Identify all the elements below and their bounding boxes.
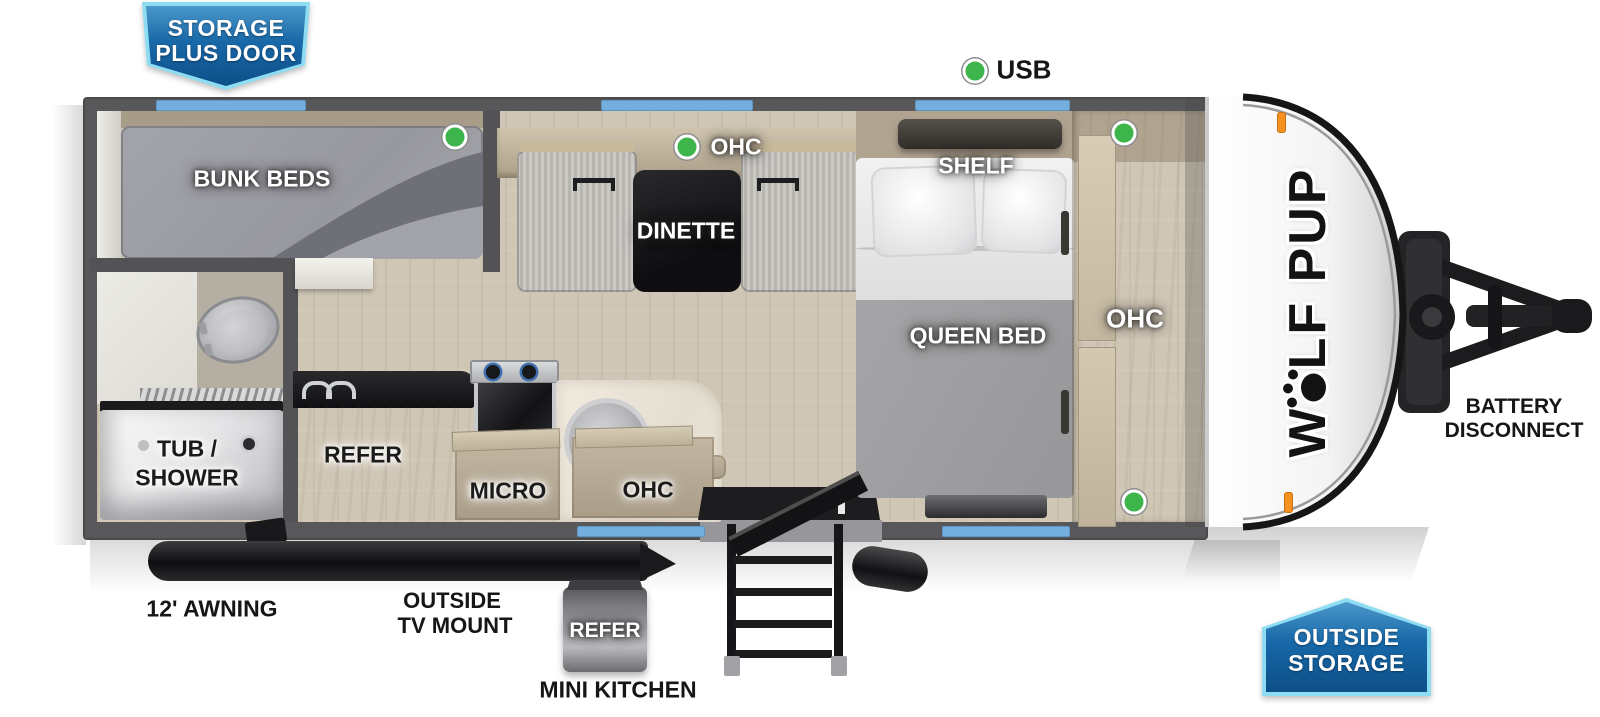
outside-storage-badge: OUTSIDE STORAGE <box>1262 598 1431 696</box>
outside-storage-line2: STORAGE <box>1262 650 1431 677</box>
window-top-bedroom <box>915 100 1070 111</box>
refer-label: REFER <box>324 442 402 469</box>
dinette-bench-left <box>517 150 637 292</box>
paw-print-icon <box>1301 373 1326 401</box>
micro-cabinet-flap <box>452 428 561 452</box>
wardrobe-handle-icon <box>1061 211 1069 255</box>
usb-label: USB <box>997 55 1052 86</box>
outside-storage-line1: OUTSIDE <box>1262 624 1431 651</box>
towel-hook-icon <box>326 381 356 399</box>
entry-steps-foot <box>724 656 740 676</box>
light-indicator-bedroom-rear <box>1122 490 1147 515</box>
dinette-bench-right <box>741 150 861 292</box>
wolf-pup-logo: WLF PUP <box>1205 90 1411 534</box>
bunk-beds-label: BUNK BEDS <box>194 166 331 193</box>
pillow-icon <box>981 168 1068 255</box>
entry-steps-rung <box>734 556 832 564</box>
window-bottom-bedroom <box>942 526 1070 537</box>
stove-cooktop-icon <box>470 360 559 384</box>
logo-rest: LF PUP <box>1279 167 1337 370</box>
outside-tv-mount-label-line1: OUTSIDE <box>403 588 501 614</box>
window-top-bunk <box>156 100 306 111</box>
kitchen-shelf-ledge <box>295 258 373 289</box>
floorplan-canvas: BUNK BEDS TUB / SHOWER REFER MICRO OHC <box>0 0 1600 717</box>
kitchen-ohc-end <box>712 455 726 479</box>
bunk-beds <box>121 126 483 259</box>
dinette-ohc-label: OHC <box>710 134 761 161</box>
micro-label: MICRO <box>470 478 547 505</box>
light-indicator-bunk <box>443 125 468 150</box>
entry-steps-rail <box>834 524 843 670</box>
battery-disconnect-label-line1: BATTERY <box>1466 395 1563 419</box>
storage-plus-door-line1: STORAGE <box>142 15 310 42</box>
window-bottom-kitchen <box>577 526 705 537</box>
queen-bed-label: QUEEN BED <box>910 323 1047 350</box>
table-bracket-icon <box>573 178 615 191</box>
dinette-label: DINETTE <box>637 218 735 245</box>
awning-label: 12' AWNING <box>146 596 277 623</box>
storage-plus-door-badge: STORAGE PLUS DOOR <box>142 2 310 90</box>
bunk-room-left-trim <box>97 111 121 272</box>
usb-indicator <box>963 59 988 84</box>
light-indicator-dinette-ohc <box>675 135 700 160</box>
tub-shower-label-line2: SHOWER <box>135 465 239 492</box>
body-shadow-left <box>52 105 86 545</box>
kitchen-ohc-label: OHC <box>622 477 673 504</box>
tv-mount-bracket <box>925 495 1047 518</box>
bunk-curve-icon <box>121 126 483 259</box>
light-indicator-bedroom-front <box>1112 121 1137 146</box>
window-top-dinette <box>601 100 753 111</box>
outside-tv-mount-label-line2: TV MOUNT <box>398 613 513 639</box>
wardrobe-door-lower <box>1078 347 1116 527</box>
entry-steps-foot <box>831 656 847 676</box>
mini-kitchen-label: MINI KITCHEN <box>539 677 696 704</box>
entry-steps-rung <box>734 620 832 628</box>
logo-letter: W <box>1279 405 1337 457</box>
tub-shower-label-line1: TUB / <box>157 436 217 463</box>
entry-steps-rung <box>734 588 832 596</box>
battery-disconnect-label-line2: DISCONNECT <box>1445 419 1584 443</box>
awning-tube <box>148 541 648 581</box>
shelf-icon <box>898 119 1062 149</box>
table-bracket-icon <box>757 178 799 191</box>
bedroom-ohc-label: OHC <box>1106 304 1164 335</box>
storage-plus-door-line2: PLUS DOOR <box>142 40 310 67</box>
wardrobe-handle-icon <box>1061 390 1069 434</box>
entry-steps-rung <box>734 650 832 658</box>
bunk-bath-divider-wall <box>90 258 300 273</box>
bathroom-wall <box>97 272 197 404</box>
kitchen-ohc-flap <box>575 425 693 448</box>
mini-kitchen-refer-label: REFER <box>569 619 640 643</box>
shelf-label: SHELF <box>938 153 1013 180</box>
